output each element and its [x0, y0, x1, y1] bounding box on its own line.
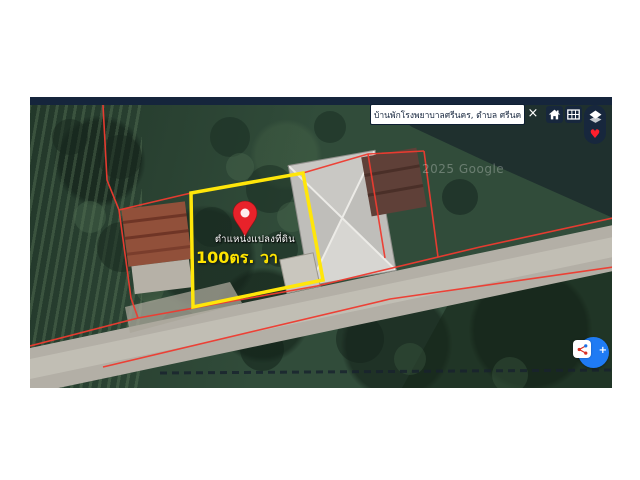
page: ตำแหน่งแปลงที่ดิน 100ตร. วา 2025 Google …: [0, 0, 640, 480]
grid-button[interactable]: [565, 106, 582, 123]
layers-favorite-pill: ♥: [584, 105, 606, 144]
brown-roof-building: [361, 148, 427, 217]
map-watermark: 2025 Google: [422, 162, 504, 176]
parcel-position-label: ตำแหน่งแปลงที่ดิน: [190, 232, 320, 247]
map-overlay: [30, 97, 612, 388]
layers-icon[interactable]: [588, 109, 603, 124]
share-button[interactable]: +: [578, 337, 609, 368]
home-icon: [548, 108, 561, 121]
heart-icon[interactable]: ♥: [590, 128, 601, 140]
plus-icon: +: [599, 345, 607, 356]
rusty-roof-building: [121, 201, 195, 294]
share-card: [573, 340, 591, 358]
share-icon: [576, 343, 589, 356]
close-search-button[interactable]: ×: [525, 105, 541, 123]
map-top-strip: [30, 97, 612, 105]
search-box: [370, 104, 525, 125]
satellite-map[interactable]: ตำแหน่งแปลงที่ดิน 100ตร. วา 2025 Google: [30, 97, 612, 388]
parcel-area-label: 100ตร. วา: [196, 246, 278, 271]
grid-icon: [567, 109, 580, 120]
home-button[interactable]: [546, 106, 563, 123]
search-input[interactable]: [371, 110, 524, 120]
